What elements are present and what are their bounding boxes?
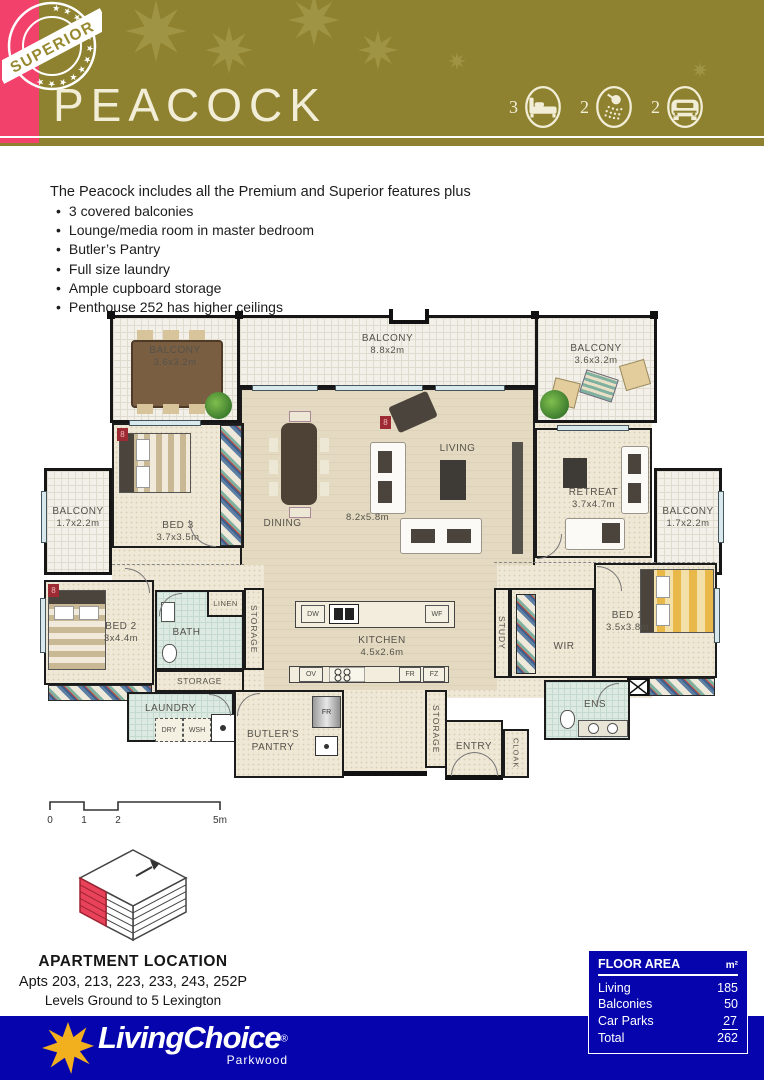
row-value: 50 [724, 996, 738, 1012]
scale-bar: 0 1 2 5m [42, 794, 232, 826]
room-label: STORAGE [427, 692, 445, 766]
starburst-icon [42, 1022, 94, 1074]
row-value: 262 [717, 1030, 738, 1046]
dining-chairs [269, 430, 278, 496]
bed-pillow [54, 606, 74, 620]
page-title: PEACOCK [53, 82, 327, 128]
room-dims: 8.8x2m [240, 345, 535, 357]
freezer: FZ [423, 667, 445, 682]
room-name: BED 1 [612, 610, 643, 621]
balcony-recess [389, 309, 429, 324]
feature-text: Lounge/media room in master bedroom [69, 222, 314, 238]
window [335, 385, 423, 391]
entry-door-arc [474, 752, 498, 776]
bed [119, 433, 191, 493]
room-label: KITCHEN4.5x2.6m [327, 634, 437, 659]
registered-mark: ® [281, 1034, 288, 1045]
room-name: WIR [554, 641, 575, 652]
feature-item: Butler’s Pantry [56, 241, 314, 257]
dryer: DRY [155, 718, 183, 742]
room-label: LAUNDRY [129, 702, 212, 715]
room-bed2: 8 BED 23x4.4m [44, 580, 154, 685]
balcony-post [107, 311, 115, 319]
row-label: Living [598, 980, 631, 996]
brand-logo: LivingChoice® Parkwood [42, 1022, 288, 1074]
unit-marker: 8 [117, 428, 128, 441]
outdoor-chairs [137, 404, 213, 414]
room-name: LINEN [213, 599, 238, 608]
feature-text: Full size laundry [69, 261, 170, 277]
room-name: STUDY [497, 616, 507, 650]
pantry-sink [315, 736, 338, 756]
room-dims-label: 8.2x5.8m [332, 512, 403, 524]
features-intro: The Peacock includes all the Premium and… [50, 184, 471, 200]
floor-area-table: FLOOR AREA m² Living 185 Balconies 50 Ca… [588, 950, 748, 1054]
room-entry: ENTRY [445, 720, 503, 780]
room-storage-hall: STORAGE [244, 588, 264, 670]
sink-bowl [345, 608, 354, 620]
window [714, 588, 720, 643]
bathroom-count: 2 [580, 97, 589, 118]
entry-corridor [344, 690, 427, 776]
room-name: BALCONY [362, 333, 413, 344]
wir-wardrobe [516, 594, 536, 674]
room-study: STUDY [494, 588, 510, 678]
sofa [400, 518, 482, 554]
plant [540, 390, 569, 419]
scale-tick: 2 [115, 815, 121, 826]
window [718, 491, 724, 543]
header-divider [0, 136, 764, 138]
bathroom-stat: 2 [580, 84, 635, 130]
feature-text: Butler’s Pantry [69, 241, 160, 257]
room-name: STORAGE [249, 605, 259, 653]
room-dims: 3x4.4m [92, 633, 150, 645]
stats-row: 3 2 2 [509, 84, 706, 130]
room-label: BALCONY1.7x2.2m [657, 505, 719, 530]
oven: OV [299, 667, 323, 682]
room-dims: 8.2x5.8m [332, 512, 403, 524]
leaf-decoration [448, 52, 466, 70]
room-dims: 3.5x3.8m [596, 622, 659, 634]
room-storage-entry: STORAGE [425, 690, 447, 768]
car-icon [664, 84, 706, 130]
floor-area-row: Total 262 [598, 1030, 738, 1046]
carpark-count: 2 [651, 97, 660, 118]
row-label: Balconies [598, 996, 652, 1012]
window [41, 491, 47, 543]
balcony-post [531, 311, 539, 319]
bed-pillow [79, 606, 99, 620]
bed-pillow [136, 466, 150, 488]
window [557, 425, 629, 431]
room-dims: 1.7x2.2m [657, 518, 719, 530]
lounge [565, 518, 625, 550]
row-value: 185 [717, 980, 738, 996]
laundry-tub [211, 714, 235, 742]
leaf-decoration [358, 30, 398, 70]
window [252, 385, 318, 391]
sink-bowl [334, 608, 343, 620]
room-label: LIVING [402, 442, 513, 455]
room-balcony-top-center: BALCONY8.8x2m [240, 315, 535, 388]
room-wir: WIR [510, 588, 594, 678]
room-cloak: CLOAK [503, 729, 529, 778]
room-label: BED 13.5x3.8m [596, 609, 659, 634]
bed-pillow [656, 576, 670, 598]
leaf-decoration [692, 62, 708, 78]
basin [607, 723, 618, 734]
room-name: BATH [173, 627, 201, 638]
row-label: Total [598, 1030, 624, 1046]
room-dims: 1.7x2.2m [47, 518, 109, 530]
sink-drain [324, 744, 329, 749]
features-list: 3 covered balconies Lounge/media room in… [56, 203, 314, 318]
room-name: BUTLER'S PANTRY [247, 729, 299, 753]
room-name: BALCONY [662, 506, 713, 517]
bed-icon [522, 84, 564, 130]
cooktop [329, 667, 365, 682]
room-label: BALCONY8.8x2m [240, 332, 535, 357]
feature-item: Lounge/media room in master bedroom [56, 222, 314, 238]
room-linen: LINEN [207, 590, 244, 617]
scale-tick: 5m [213, 815, 227, 826]
sofa-cushion [602, 523, 620, 543]
feature-item: Ample cupboard storage [56, 280, 314, 296]
shower-icon [593, 84, 635, 130]
sofa-cushion [378, 451, 392, 473]
bedroom-count: 3 [509, 97, 518, 118]
carpark-stat: 2 [651, 84, 706, 130]
shaft-x-icon [629, 680, 647, 694]
feature-item: Full size laundry [56, 261, 314, 277]
room-dims: 3.7x4.7m [537, 499, 650, 511]
sofa-cushion [411, 529, 435, 543]
fridge: FR [399, 667, 421, 682]
unit-marker: 8 [48, 584, 59, 597]
retreat-tv-unit [563, 458, 587, 488]
room-label: DINING [242, 517, 323, 530]
room-label: STORAGE [246, 590, 262, 668]
room-name: RETREAT [569, 487, 618, 498]
room-name: BALCONY [570, 343, 621, 354]
outdoor-chairs [137, 330, 213, 340]
floor-area-row: Car Parks 27 [598, 1013, 738, 1030]
brand-location: Parkwood [98, 1054, 288, 1066]
feature-item: 3 covered balconies [56, 203, 314, 219]
pantry-fridge: FR [312, 696, 341, 728]
entry-door-arc [451, 752, 475, 776]
row-label: Car Parks [598, 1013, 654, 1030]
scale-tick: 1 [81, 815, 87, 826]
room-label: WIR [536, 640, 592, 653]
sofa-cushion [378, 481, 392, 503]
room-name: CLOAK [512, 738, 521, 768]
window [435, 385, 505, 391]
room-storage-lower: STORAGE [155, 670, 244, 692]
room-label: STUDY [496, 590, 508, 676]
room-name: LIVING [440, 443, 476, 454]
room-label: BATH [157, 626, 216, 639]
toilet [162, 644, 177, 663]
room-dims: 4.5x2.6m [327, 647, 437, 659]
window [40, 598, 46, 653]
room-name: BALCONY [52, 506, 103, 517]
feature-text: Ample cupboard storage [69, 280, 222, 296]
feature-text: 3 covered balconies [69, 203, 194, 219]
kitchen-sink [329, 604, 359, 624]
room-dims: 3.6x3.2m [113, 357, 237, 369]
tub-drain [220, 725, 226, 731]
room-name: DINING [264, 518, 302, 529]
bedroom-stat: 3 [509, 84, 564, 130]
apartment-location-title: APARTMENT LOCATION [0, 953, 266, 971]
floor-area-unit: m² [726, 960, 738, 971]
leaf-decoration [288, 0, 340, 46]
room-name: STORAGE [177, 676, 222, 686]
building-location-diagram [70, 846, 196, 950]
floor-area-row: Balconies 50 [598, 996, 738, 1012]
unit-marker: 8 [380, 416, 391, 429]
dashed-line [112, 564, 244, 565]
outdoor-lounge [579, 369, 619, 402]
toilet [560, 710, 575, 729]
room-name: ENTRY [456, 741, 492, 752]
dining-chairs [320, 430, 329, 496]
floor-area-title: FLOOR AREA [598, 957, 680, 971]
brochure-page: { "header": { "badge": "SUPERIOR", "badg… [0, 0, 764, 1080]
apartment-numbers: Apts 203, 213, 223, 233, 243, 252P [0, 974, 266, 990]
room-name: STORAGE [431, 705, 441, 753]
scale-tick: 0 [47, 815, 53, 826]
leaf-decoration [205, 26, 253, 74]
sofa [370, 442, 406, 514]
room-living-dining: LIVING 8.2x5.8m DINING [240, 388, 535, 565]
room-label: BUTLER'S PANTRY [238, 728, 308, 754]
room-label: LINEN [209, 599, 242, 609]
sofa-cushion [447, 529, 471, 543]
room-name: BED 2 [105, 621, 136, 632]
tv-cabinet [440, 460, 466, 500]
water-filter: WF [425, 605, 449, 623]
bed3-wardrobe [220, 425, 242, 546]
floor-area-header: FLOOR AREA m² [598, 957, 738, 976]
header-band: ★ ★ ★ ★ ★ ★ ★ ★ ★ ★ ★ ★ SUPERIOR PEACOCK… [0, 0, 764, 146]
sofa-cushion [628, 454, 641, 474]
dishwasher: DW [301, 605, 325, 623]
apartment-levels: Levels Ground to 5 Lexington [0, 993, 266, 1008]
room-label: CLOAK [505, 731, 527, 776]
duct-shaft [627, 678, 649, 696]
double-vanity [578, 720, 628, 737]
basin [588, 723, 599, 734]
armchair [388, 391, 438, 434]
media-wall [512, 442, 523, 554]
balcony-post [650, 311, 658, 319]
room-name: KITCHEN [358, 635, 405, 646]
room-label: BALCONY3.6x3.2m [113, 344, 237, 369]
floorplan: BALCONY3.6x3.2m BALCONY8.8x2m BALCONY3.6… [37, 306, 727, 786]
leaf-decoration [125, 0, 187, 62]
floor-area-row: Living 185 [598, 980, 738, 996]
brand-text-block: LivingChoice® Parkwood [98, 1022, 288, 1066]
dining-table [281, 423, 317, 505]
room-label: STORAGE [157, 676, 242, 687]
room-label: BED 23x4.4m [92, 620, 150, 645]
row-value: 27 [722, 1013, 738, 1030]
plant [205, 392, 232, 419]
bed1-wardrobe [649, 678, 715, 696]
room-name: LAUNDRY [145, 703, 196, 714]
washer: WSH [183, 718, 211, 742]
dining-chair [289, 411, 311, 422]
balcony-post [235, 311, 243, 319]
bed-pillow [136, 439, 150, 461]
bed-headboard [120, 434, 134, 492]
room-name: BALCONY [149, 345, 200, 356]
room-balcony-right: BALCONY1.7x2.2m [654, 468, 722, 575]
room-label: RETREAT3.7x4.7m [537, 486, 650, 511]
room-balcony-left: BALCONY1.7x2.2m [44, 468, 112, 575]
window [129, 420, 201, 426]
room-label: BALCONY1.7x2.2m [47, 505, 109, 530]
brand-name: LivingChoice [98, 1020, 281, 1055]
